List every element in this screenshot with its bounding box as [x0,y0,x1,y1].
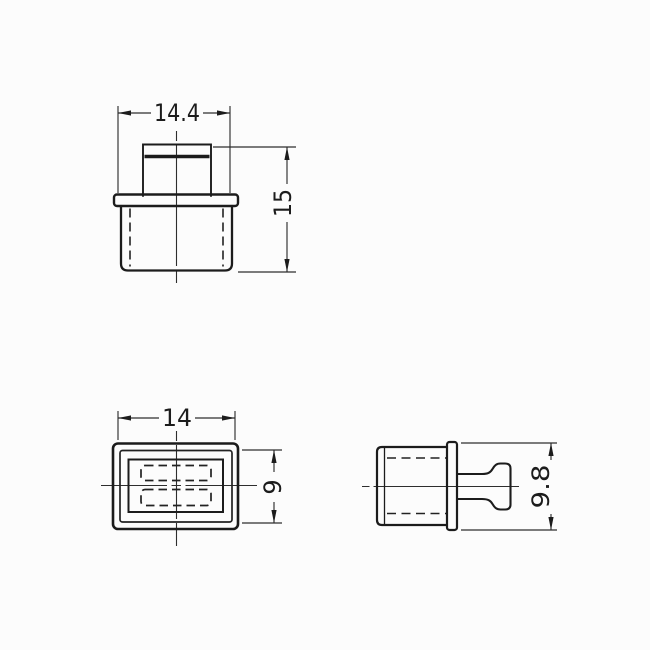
engineering-drawing-canvas: 14.4 15 [0,0,650,650]
front-width-dimension: 14.4 [118,99,230,193]
front-height-dimension: 15 [213,147,297,272]
arrowhead-up [284,147,289,160]
arrowhead-left [118,110,131,115]
top-flange-outer-outline [113,444,238,530]
dim-front-width-label: 14.4 [154,99,200,127]
arrowhead-up [548,443,553,456]
top-view: 14 9 [101,404,287,546]
dim-front-height-label: 15 [269,189,297,217]
arrowhead-left [118,415,131,420]
dim-side-height-label: 9.8 [527,465,555,509]
dust-cap-technical-drawing: 14.4 15 [0,0,650,650]
arrowhead-right [222,415,235,420]
top-depth-dimension: 9 [242,450,287,523]
front-view: 14.4 15 [114,99,297,283]
dim-top-width-label: 14 [162,404,192,432]
arrowhead-down [548,517,553,530]
arrowhead-down [284,259,289,272]
arrowhead-right [217,110,230,115]
arrowhead-down [271,510,276,523]
side-view: 9.8 [362,442,557,530]
arrowhead-up [271,450,276,463]
dim-top-depth-label: 9 [259,479,287,494]
